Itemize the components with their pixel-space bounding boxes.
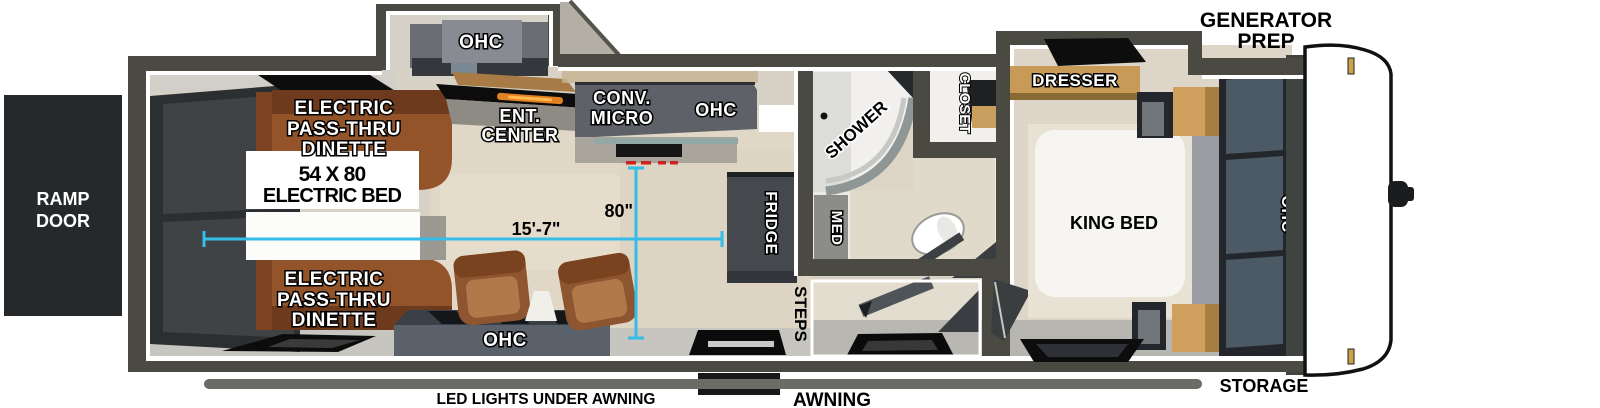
svg-text:CENTER: CENTER: [481, 125, 558, 145]
svg-text:CONV.: CONV.: [593, 88, 651, 108]
svg-text:OHC: OHC: [459, 32, 503, 53]
svg-text:80": 80": [604, 201, 633, 221]
svg-text:STEPS: STEPS: [791, 286, 810, 342]
svg-text:15'-7": 15'-7": [512, 219, 561, 239]
svg-text:PREP: PREP: [1237, 30, 1294, 53]
svg-text:PASS-THRU: PASS-THRU: [287, 119, 401, 140]
svg-text:ELECTRIC: ELECTRIC: [295, 98, 394, 119]
svg-text:DINETTE: DINETTE: [292, 310, 377, 331]
svg-text:FRIDGE: FRIDGE: [762, 191, 779, 254]
svg-text:MED: MED: [828, 211, 845, 246]
svg-text:OHC: OHC: [695, 100, 737, 120]
svg-text:LED LIGHTS UNDER AWNING: LED LIGHTS UNDER AWNING: [436, 391, 655, 408]
svg-text:GENERATOR: GENERATOR: [1200, 9, 1332, 32]
svg-text:STORAGE: STORAGE: [1220, 376, 1309, 396]
svg-text:54 X 80: 54 X 80: [299, 163, 366, 186]
svg-text:ELECTRIC: ELECTRIC: [285, 269, 384, 290]
svg-text:RAMP: RAMP: [37, 189, 90, 209]
svg-text:ELECTRIC BED: ELECTRIC BED: [263, 185, 402, 207]
svg-text:DINETTE: DINETTE: [302, 139, 387, 160]
svg-text:PASS-THRU: PASS-THRU: [277, 290, 391, 311]
svg-text:CLOSET: CLOSET: [956, 73, 973, 134]
svg-text:ENT.: ENT.: [499, 106, 540, 126]
svg-text:AWNING: AWNING: [793, 390, 871, 408]
svg-text:OHC: OHC: [483, 330, 527, 351]
svg-text:DOOR: DOOR: [36, 211, 90, 231]
svg-text:MICRO: MICRO: [591, 108, 654, 128]
svg-text:DRESSER: DRESSER: [1032, 71, 1118, 90]
svg-text:KING BED: KING BED: [1070, 213, 1158, 233]
